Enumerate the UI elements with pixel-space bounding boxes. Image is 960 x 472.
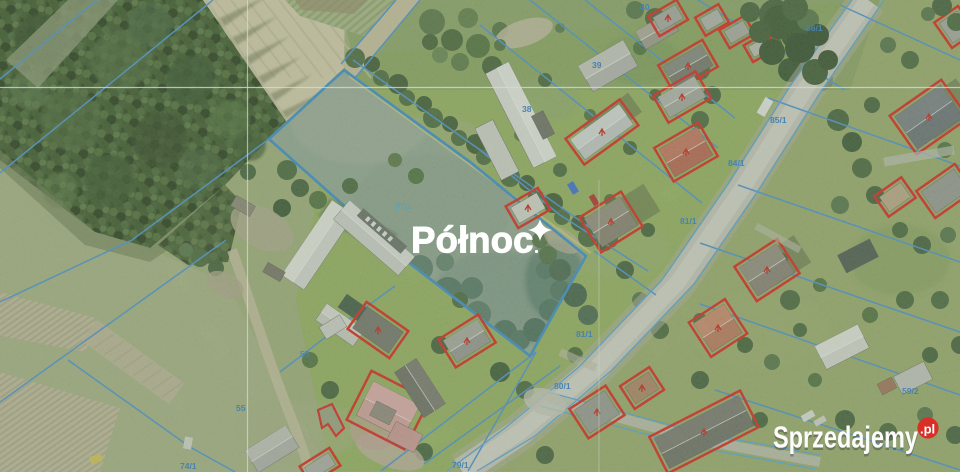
svg-text:Północ: Północ — [411, 219, 534, 261]
svg-text:.pl: .pl — [920, 422, 935, 437]
svg-text:Sprzedajemy: Sprzedajemy — [773, 421, 918, 455]
